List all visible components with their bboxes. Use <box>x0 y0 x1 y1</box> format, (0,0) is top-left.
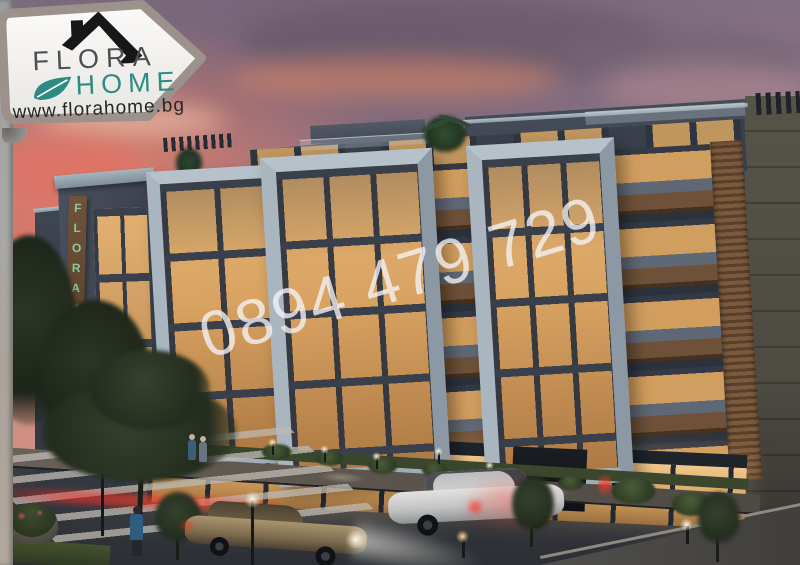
shrub <box>316 451 344 466</box>
bollard-glow <box>268 438 277 447</box>
wheel <box>209 536 229 556</box>
bollard-glow <box>372 452 381 461</box>
leaf-icon <box>31 73 74 103</box>
taillight-reflection <box>598 470 612 500</box>
gold-car <box>183 497 372 565</box>
tree-canopy <box>698 492 740 544</box>
scene-render: FLORA HOME <box>0 0 800 565</box>
pedestrian-body <box>130 514 143 540</box>
pedestrian <box>199 436 207 462</box>
bollard-glow <box>680 518 693 531</box>
cloud <box>230 58 560 100</box>
lamp-glow <box>244 491 261 508</box>
flower-planter <box>6 504 58 544</box>
shrub <box>262 444 292 460</box>
tree-canopy <box>512 476 554 532</box>
pedestrian <box>188 434 196 460</box>
pedestrian-body <box>188 440 196 460</box>
pedestrian-body <box>199 442 207 462</box>
pedestrian-legs <box>132 540 142 556</box>
bollard-glow <box>434 447 443 456</box>
pedestrian <box>130 506 143 556</box>
wheel <box>417 514 439 536</box>
rooftop-pergola <box>755 91 800 115</box>
bollard-glow <box>320 445 329 454</box>
pedestrian-head <box>133 506 141 514</box>
street-lamp <box>251 500 254 565</box>
bollard-glow <box>456 530 469 543</box>
shrub <box>612 478 656 504</box>
brand-badge: FLORA HOME www.florahome.bg <box>0 0 215 132</box>
